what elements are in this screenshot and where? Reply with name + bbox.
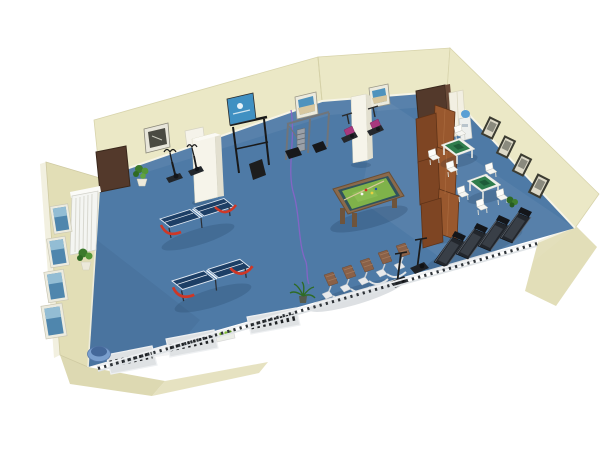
top-wall-picture-2[interactable] [295,92,318,119]
door-left[interactable] [96,146,130,192]
room-render-canvas [0,0,600,450]
poster [227,93,256,125]
top-wall-picture-3[interactable] [369,84,390,108]
radiator[interactable] [70,186,101,255]
floorplan-svg [0,0,600,450]
exterior-wall-bottom [152,362,268,396]
water-bottle [461,110,470,118]
screen-panel [421,198,443,248]
waste-bin[interactable] [88,347,111,362]
screen-panel [418,156,440,205]
